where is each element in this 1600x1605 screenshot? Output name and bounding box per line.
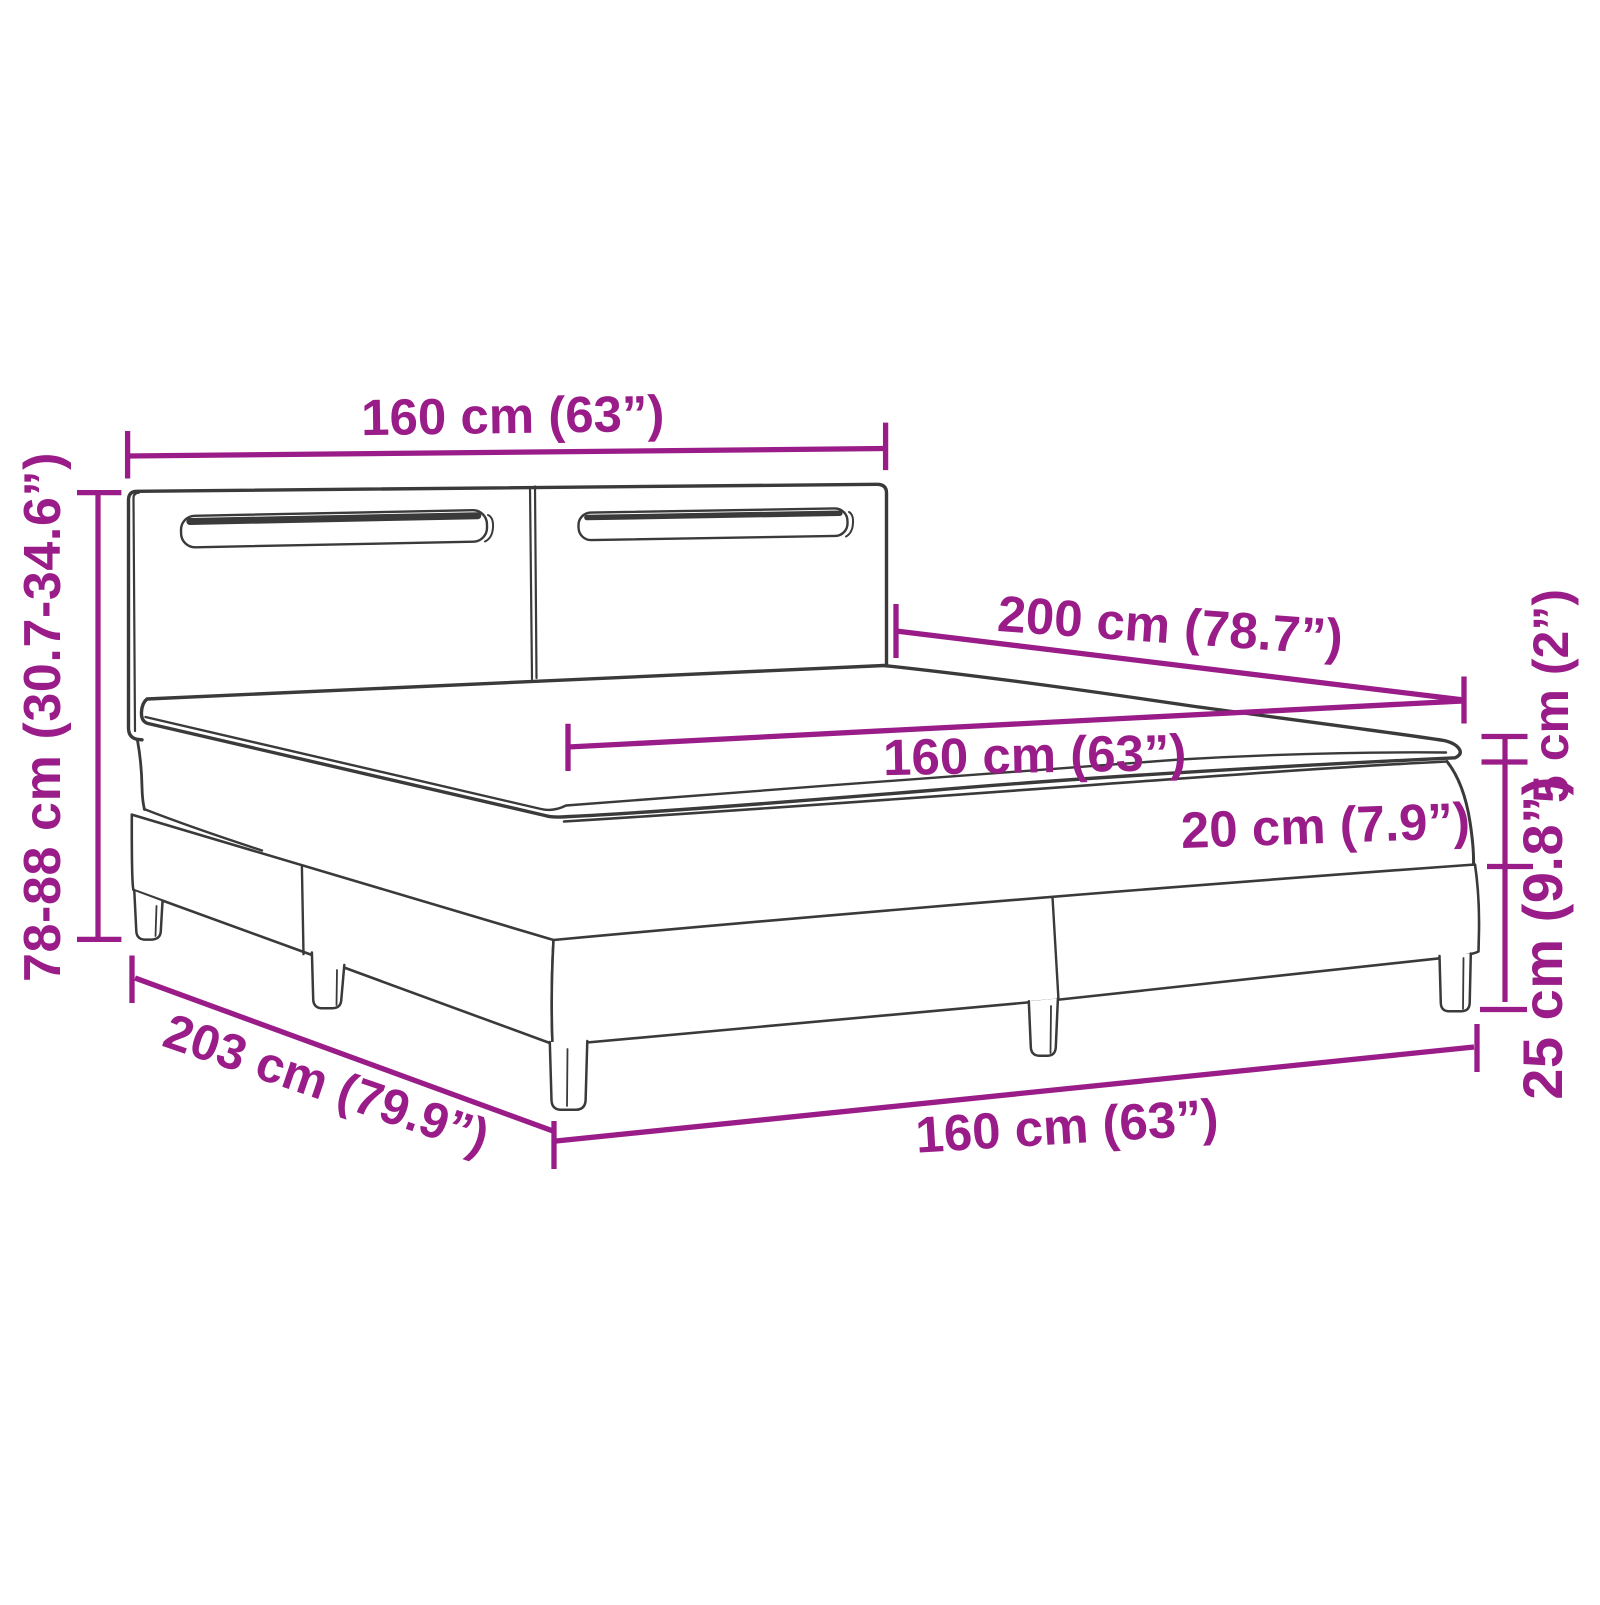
svg-text:160 cm (63”): 160 cm (63”) [361, 385, 665, 446]
svg-text:160 cm (63”): 160 cm (63”) [883, 724, 1187, 786]
svg-text:20 cm (7.9”): 20 cm (7.9”) [1180, 792, 1471, 859]
svg-text:5 cm (2”): 5 cm (2”) [1523, 589, 1579, 803]
svg-text:25 cm (9.8”): 25 cm (9.8”) [1511, 776, 1574, 1100]
svg-text:78-88 cm (30.7-34.6”): 78-88 cm (30.7-34.6”) [14, 452, 72, 982]
